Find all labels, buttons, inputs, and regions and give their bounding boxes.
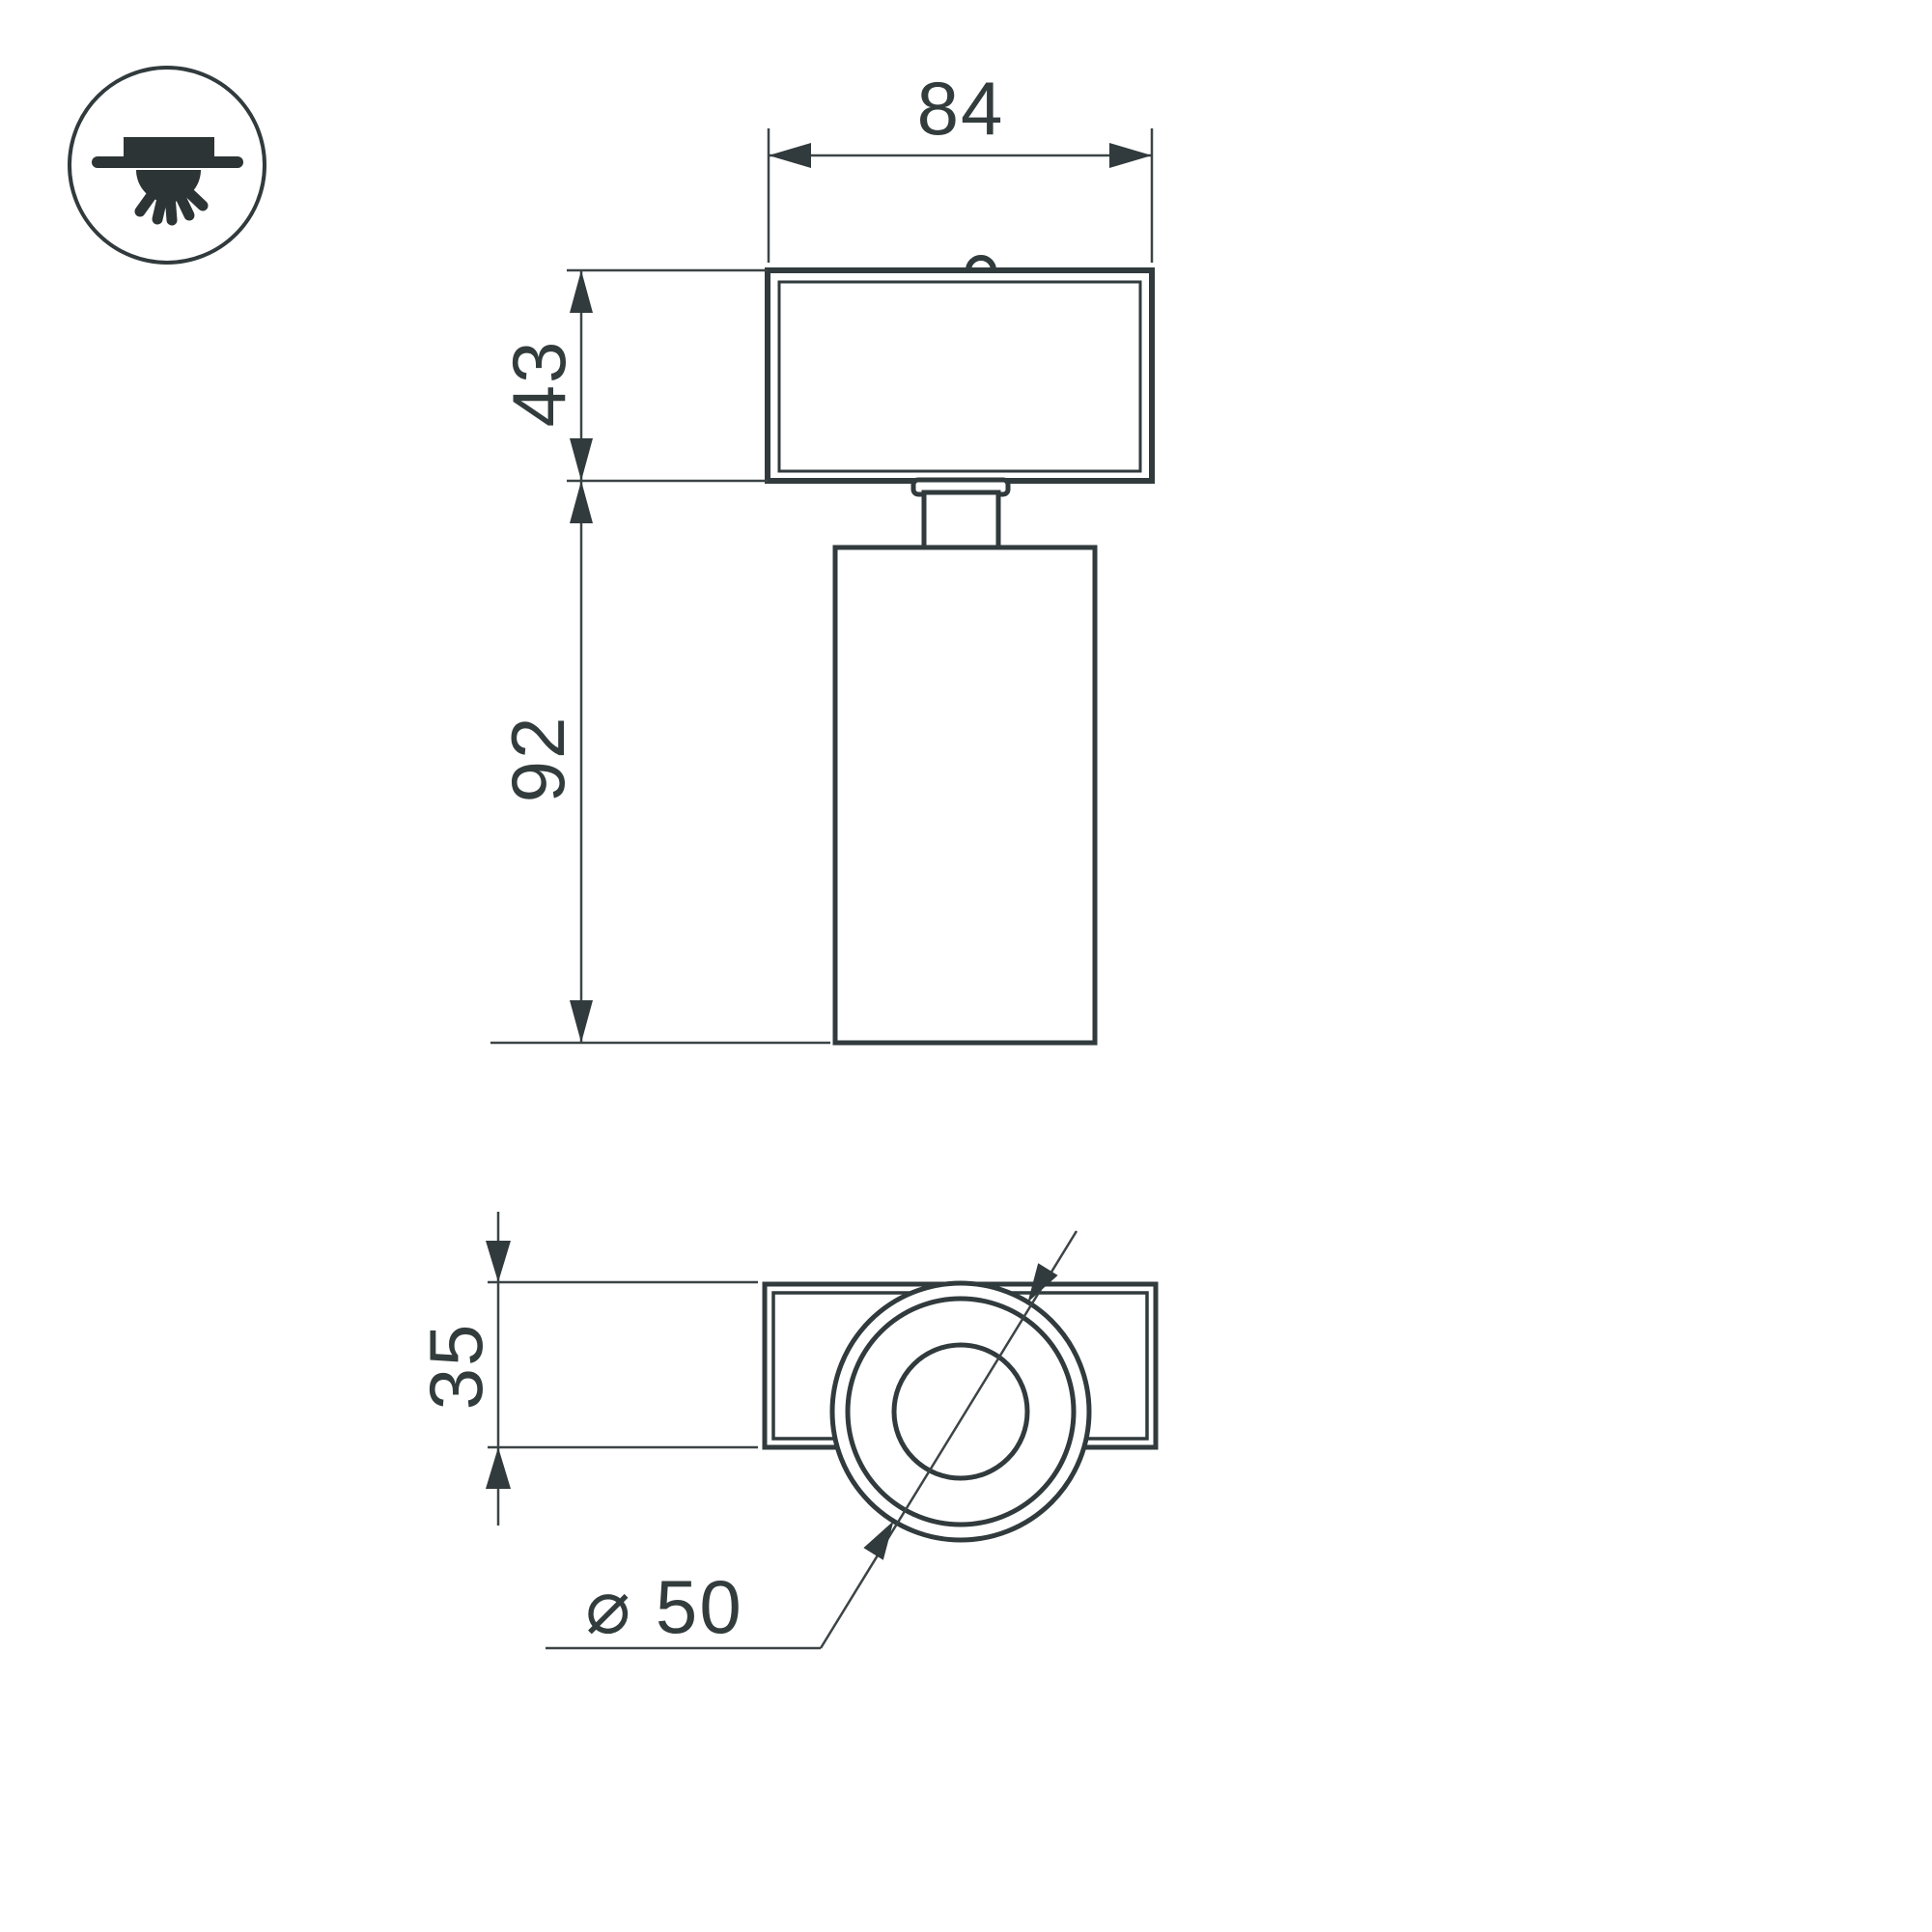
surface-ceiling-mount-light-icon bbox=[70, 68, 265, 263]
dimension-label-head-height: 43 bbox=[501, 340, 576, 428]
icon-light-rays bbox=[140, 188, 203, 220]
arrowhead-down bbox=[486, 1241, 511, 1282]
dimension-label-track-width: 84 bbox=[917, 70, 1005, 146]
arrowhead-right bbox=[1109, 143, 1152, 168]
bezel-outer-circle bbox=[832, 1283, 1089, 1540]
dimension-label-body-height: 92 bbox=[500, 715, 575, 803]
arrowhead-up bbox=[570, 270, 593, 313]
swivel-stem bbox=[924, 492, 998, 548]
technical-drawing-page: 84 43 92 35 ⌀ 50 bbox=[0, 0, 1932, 1932]
dimension-35 bbox=[486, 1212, 758, 1526]
luminaire-dimension-drawing bbox=[0, 0, 1932, 1932]
track-base-outer bbox=[768, 270, 1152, 481]
arrowhead-down bbox=[570, 1000, 593, 1043]
arrowhead-left bbox=[769, 143, 811, 168]
arrowhead-up bbox=[486, 1447, 511, 1489]
dimension-43 bbox=[567, 270, 768, 481]
arrowhead-lower bbox=[863, 1521, 893, 1559]
cylinder-body bbox=[835, 547, 1095, 1043]
arrowhead-down bbox=[570, 438, 593, 481]
bottom-view bbox=[765, 1283, 1156, 1540]
icon-ceiling-bar bbox=[92, 156, 243, 168]
arrowhead-up bbox=[570, 481, 593, 523]
dimension-label-diameter: ⌀ 50 bbox=[585, 1569, 742, 1644]
front-view bbox=[768, 258, 1152, 1043]
dimension-label-base-depth: 35 bbox=[418, 1323, 493, 1411]
